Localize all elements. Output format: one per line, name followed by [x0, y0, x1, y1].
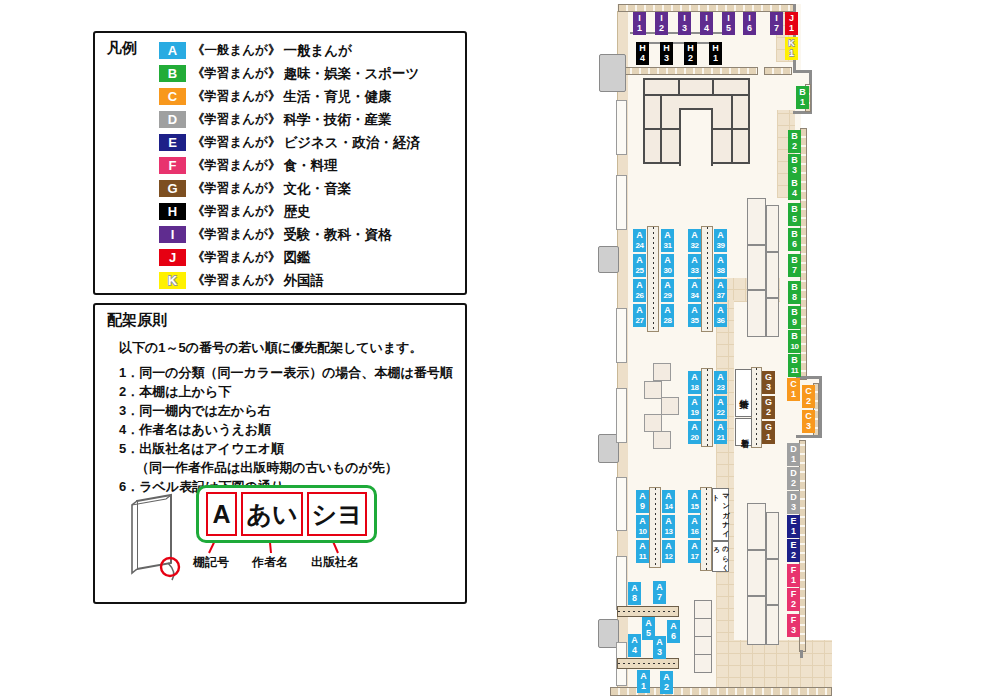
shelf-label-B2: B2 [788, 130, 801, 153]
shelf-label-B7: B7 [788, 254, 801, 277]
shelf-label-number: 26 [636, 291, 644, 301]
shelf-label-number: 1 [713, 54, 718, 64]
shelf-label-D2: D2 [787, 467, 800, 490]
shelf-label-B10: B10 [788, 330, 801, 353]
shelf-label-number: 2 [664, 683, 669, 693]
shelf-label-letter: A [717, 423, 724, 433]
shelf-label-number: 25 [636, 266, 644, 276]
shelf-label-A26: A26 [633, 279, 646, 302]
shelf-label-number: 23 [717, 383, 725, 393]
shelf-unit [747, 198, 766, 245]
shelf-label-A27: A27 [633, 304, 646, 327]
shelf-label-letter: A [691, 423, 698, 433]
wall-pillar [616, 175, 627, 230]
shelf-divider [678, 78, 680, 95]
shelf-label-G2: G2 [762, 396, 775, 419]
shelf-label-letter: A [717, 373, 724, 383]
shelf-label-B5: B5 [788, 203, 801, 226]
shelf-label-letter: B [791, 332, 798, 342]
shelf-divider [712, 78, 714, 95]
shelf-label-A6: A6 [667, 620, 680, 643]
shelf-label-B1: B1 [796, 86, 809, 109]
area-box-新着: 新着 [735, 418, 752, 446]
shelf-unit [747, 503, 766, 550]
shelf-label-I3: I3 [678, 12, 691, 35]
shelf-unit [747, 245, 766, 290]
shelf-label-E2: E2 [787, 539, 800, 562]
shelf-label-number: 3 [806, 422, 811, 432]
shelf-label-B8: B8 [788, 281, 801, 304]
bookshelf-row [647, 226, 659, 332]
shelf-label-number: 20 [691, 433, 699, 443]
shelf-label-A29: A29 [661, 279, 674, 302]
shelf-label-H1: H1 [709, 42, 722, 65]
floor-map: I1I2I3I4I5I6I7J1K1H4H3H2H1B1B2B3B4B5B6B7… [0, 0, 1000, 700]
shelf-label-letter: A [691, 256, 698, 266]
shelf-label-number: 3 [792, 166, 797, 176]
shelf-label-number: 7 [657, 593, 662, 603]
shelf-label-B4: B4 [788, 177, 801, 200]
shelf-label-letter: A [636, 231, 643, 241]
shelf-label-A2: A2 [660, 671, 673, 694]
shelf-label-number: 9 [640, 502, 645, 512]
shelf-label-letter: A [664, 256, 671, 266]
shelf-label-A11: A11 [636, 540, 649, 563]
shelf-label-A33: A33 [688, 254, 701, 277]
shelf-label-number: 1 [791, 390, 796, 400]
shelf-label-number: 2 [791, 479, 796, 489]
shelf-divider [731, 95, 733, 164]
shelf-label-number: 7 [792, 266, 797, 276]
shelf-label-B3: B3 [788, 154, 801, 177]
shelf-label-I7: I7 [770, 12, 783, 35]
shelf-label-number: 1 [637, 24, 642, 34]
wall-pillar [616, 388, 627, 443]
shelf-label-letter: A [639, 517, 646, 527]
shelf-label-number: 5 [726, 24, 731, 34]
shelf-label-number: 29 [664, 291, 672, 301]
page: 凡例 A《一般まんが》一般まんがB《学習まんが》趣味・娯楽・スポーツC《学習まん… [0, 0, 1000, 700]
shelf-label-letter: A [691, 373, 698, 383]
shelf-label-E1: E1 [787, 515, 800, 538]
shelf-label-number: 2 [766, 408, 771, 418]
shelf-label-I4: I4 [700, 12, 713, 35]
shelf-label-number: 4 [632, 646, 637, 656]
wall-pillar [616, 100, 627, 155]
shelf-label-number: 2 [791, 551, 796, 561]
shelf-label-I5: I5 [722, 12, 735, 35]
display-table [644, 414, 662, 432]
bookshelf-row [701, 226, 713, 332]
shelf-label-A39: A39 [714, 229, 727, 252]
shelf-label-I2: I2 [655, 12, 668, 35]
shelf-label-number: 28 [664, 316, 672, 326]
area-box-マンガナイト: マンガナイト [712, 488, 729, 541]
shelf-label-number: 2 [806, 397, 811, 407]
shelf-label-letter: A [717, 306, 724, 316]
shelf-divider [660, 95, 662, 164]
shelf-label-number: 6 [792, 240, 797, 250]
shelf-label-number: 33 [691, 266, 699, 276]
area-box-特集: 特集 [735, 369, 752, 417]
shelf-label-I6: I6 [743, 12, 756, 35]
shelf-unit [694, 600, 712, 619]
shelf-label-A3: A3 [653, 636, 666, 659]
shelf-label-letter: A [717, 281, 724, 291]
shelf-label-D3: D3 [787, 491, 800, 514]
shelf-label-letter: A [691, 542, 698, 552]
shelf-label-number: 9 [792, 318, 797, 328]
shelf-label-J1: J1 [785, 12, 798, 35]
shelf-label-A1: A1 [637, 670, 650, 693]
shelf-unit [694, 618, 712, 637]
shelf-label-H4: H4 [636, 42, 649, 65]
shelf-label-letter: A [664, 306, 671, 316]
shelf-label-C1: C1 [787, 378, 800, 401]
shelf-label-number: 19 [691, 408, 699, 418]
bookshelf-row [617, 606, 679, 617]
shelf-label-A35: A35 [688, 304, 701, 327]
shelf-label-letter: A [665, 542, 672, 552]
shelf-label-F2: F2 [787, 588, 800, 611]
shelf-label-number: 1 [766, 433, 771, 443]
shelf-label-A10: A10 [636, 515, 649, 538]
shelf-label-A36: A36 [714, 304, 727, 327]
shelf-label-number: 24 [636, 241, 644, 251]
shelf-unit [766, 605, 779, 645]
shelf-label-B11: B11 [788, 354, 801, 377]
shelf-label-number: 22 [717, 408, 725, 418]
top-shelf-row [764, 67, 792, 75]
shelf-label-number: 13 [665, 527, 673, 537]
shelf-label-number: 18 [691, 383, 699, 393]
shelf-label-letter: A [691, 281, 698, 291]
tiled-corridor [716, 300, 734, 645]
shelf-label-number: 4 [792, 189, 797, 199]
shelf-label-number: 10 [791, 342, 799, 352]
shelf-label-A23: A23 [714, 371, 727, 394]
shelf-label-A18: A18 [688, 371, 701, 394]
shelf-label-number: 1 [791, 576, 796, 586]
shelf-unit [766, 252, 779, 298]
shelf-label-number: 17 [691, 552, 699, 562]
door [599, 54, 626, 92]
shelf-label-number: 1 [789, 49, 794, 59]
shelf-label-number: 1 [791, 527, 796, 537]
shelf-label-letter: A [691, 398, 698, 408]
shelf-label-number: 3 [682, 24, 687, 34]
shelf-label-A34: A34 [688, 279, 701, 302]
shelf-label-number: 8 [792, 293, 797, 303]
shelf-label-number: 3 [657, 648, 662, 658]
shelf-label-C3: C3 [802, 410, 815, 433]
shelf-label-A12: A12 [662, 540, 675, 563]
shelf-label-letter: A [691, 492, 698, 502]
shelf-label-H3: H3 [660, 42, 673, 65]
shelf-label-A7: A7 [653, 581, 666, 604]
shelf-label-number: 15 [691, 502, 699, 512]
shelf-label-number: 11 [791, 366, 798, 376]
shelf-label-H2: H2 [684, 42, 697, 65]
shelf-label-number: 39 [717, 241, 725, 251]
shelf-unit [766, 298, 779, 337]
wall-pillar [616, 477, 627, 531]
shelf-unit [694, 654, 712, 673]
shelf-label-letter: A [691, 517, 698, 527]
shelf-label-letter: A [691, 306, 698, 316]
shelf-label-A25: A25 [633, 254, 646, 277]
shelf-label-number: 7 [774, 24, 779, 34]
shelf-label-A37: A37 [714, 279, 727, 302]
shelf-label-number: 1 [800, 98, 805, 108]
shelf-label-number: 2 [792, 142, 797, 152]
shelf-label-number: 1 [789, 24, 794, 34]
shelf-label-number: 3 [791, 503, 796, 513]
top-shelf-row [622, 67, 758, 75]
shelf-label-number: 12 [665, 552, 673, 562]
shelf-label-number: 6 [671, 632, 676, 642]
alcove-wall [796, 435, 822, 438]
shelf-label-number: 34 [691, 291, 699, 301]
bookshelf-row [701, 368, 713, 447]
shelf-label-number: 8 [632, 594, 637, 604]
shelf-label-number: 3 [766, 383, 771, 393]
wall-shelf-b [800, 128, 807, 380]
shelf-label-A19: A19 [688, 396, 701, 419]
shelf-label-number: 32 [691, 241, 699, 251]
shelf-label-A13: A13 [662, 515, 675, 538]
shelf-label-A14: A14 [662, 490, 675, 513]
shelf-unit [766, 559, 779, 605]
shelf-label-A28: A28 [661, 304, 674, 327]
bookshelf-row [751, 367, 762, 448]
shelf-unit [694, 636, 712, 655]
shelf-label-number: 16 [691, 527, 699, 537]
shelf-label-letter: A [717, 256, 724, 266]
shelf-label-A8: A8 [628, 582, 641, 605]
shelf-label-number: 30 [664, 266, 672, 276]
shelf-label-A32: A32 [688, 229, 701, 252]
shelf-label-number: 3 [791, 626, 796, 636]
shelf-label-letter: A [691, 231, 698, 241]
shelf-label-letter: A [665, 492, 672, 502]
shelf-label-number: 2 [791, 600, 796, 610]
shelf-label-number: 5 [646, 629, 651, 639]
shelf-label-number: 27 [636, 316, 644, 326]
shelf-label-letter: A [636, 306, 643, 316]
shelf-label-letter: A [636, 256, 643, 266]
shelf-label-letter: A [717, 231, 724, 241]
center-shelf-notch [679, 108, 713, 166]
shelf-label-letter: A [664, 231, 671, 241]
shelf-unit [766, 205, 779, 252]
display-table [644, 381, 662, 399]
shelf-label-G1: G1 [762, 421, 775, 444]
shelf-label-F1: F1 [787, 564, 800, 587]
shelf-label-A22: A22 [714, 396, 727, 419]
shelf-label-A16: A16 [688, 515, 701, 538]
shelf-label-B6: B6 [788, 228, 801, 251]
shelf-label-number: 36 [717, 316, 725, 326]
shelf-label-number: 31 [664, 241, 672, 251]
shelf-label-letter: A [639, 542, 646, 552]
shelf-unit [747, 550, 766, 596]
shelf-label-number: 1 [641, 682, 646, 692]
shelf-label-number: 37 [717, 291, 725, 301]
shelf-label-A4: A4 [628, 634, 641, 657]
shelf-label-letter: A [664, 281, 671, 291]
wall-pillar [616, 308, 627, 363]
bookshelf-row [649, 487, 661, 568]
shelf-label-number: 5 [792, 215, 797, 225]
shelf-label-number: 11 [639, 552, 646, 562]
shelf-label-C2: C2 [802, 385, 815, 408]
shelf-label-number: 35 [691, 316, 699, 326]
shelf-label-number: 3 [664, 54, 669, 64]
shelf-label-number: 10 [639, 527, 647, 537]
shelf-label-number: 14 [665, 502, 673, 512]
shelf-label-F3: F3 [787, 614, 800, 637]
shelf-label-number: 4 [704, 24, 709, 34]
shelf-label-number: 4 [640, 54, 645, 64]
display-table [653, 431, 671, 449]
bookshelf-row [617, 658, 679, 669]
shelf-unit [766, 512, 779, 559]
shelf-label-A20: A20 [688, 421, 701, 444]
wall-shelf-def [799, 440, 806, 652]
shelf-label-A17: A17 [688, 540, 701, 563]
top-wall [618, 4, 796, 12]
shelf-unit [747, 596, 766, 645]
shelf-label-A21: A21 [714, 421, 727, 444]
wall-pillar [616, 556, 627, 610]
door [598, 246, 619, 273]
shelf-label-A15: A15 [688, 490, 701, 513]
shelf-label-I1: I1 [633, 12, 646, 35]
display-table [661, 397, 679, 415]
area-box-のらくろ: のらくろ [712, 541, 729, 572]
shelf-label-A9: A9 [636, 490, 649, 513]
shelf-label-K1: K1 [785, 37, 798, 60]
shelf-label-number: 1 [791, 455, 796, 465]
shelf-label-A24: A24 [633, 229, 646, 252]
shelf-label-letter: A [665, 517, 672, 527]
display-table [653, 363, 671, 381]
alcove-wall [819, 377, 822, 438]
shelf-label-A31: A31 [661, 229, 674, 252]
shelf-label-number: 38 [717, 266, 725, 276]
shelf-label-number: 2 [688, 54, 693, 64]
shelf-label-letter: A [717, 398, 724, 408]
shelf-label-B9: B9 [788, 306, 801, 329]
shelf-label-letter: A [636, 281, 643, 291]
shelf-label-number: 2 [659, 24, 664, 34]
shelf-unit [747, 290, 766, 337]
shelf-label-G3: G3 [762, 371, 775, 394]
shelf-label-A30: A30 [661, 254, 674, 277]
tiled-floor [716, 640, 832, 690]
shelf-label-number: 21 [717, 433, 725, 443]
shelf-label-A38: A38 [714, 254, 727, 277]
shelf-label-D1: D1 [787, 443, 800, 466]
right-wall [800, 650, 803, 658]
shelf-label-number: 6 [747, 24, 752, 34]
shelf-label-letter: B [791, 356, 798, 366]
